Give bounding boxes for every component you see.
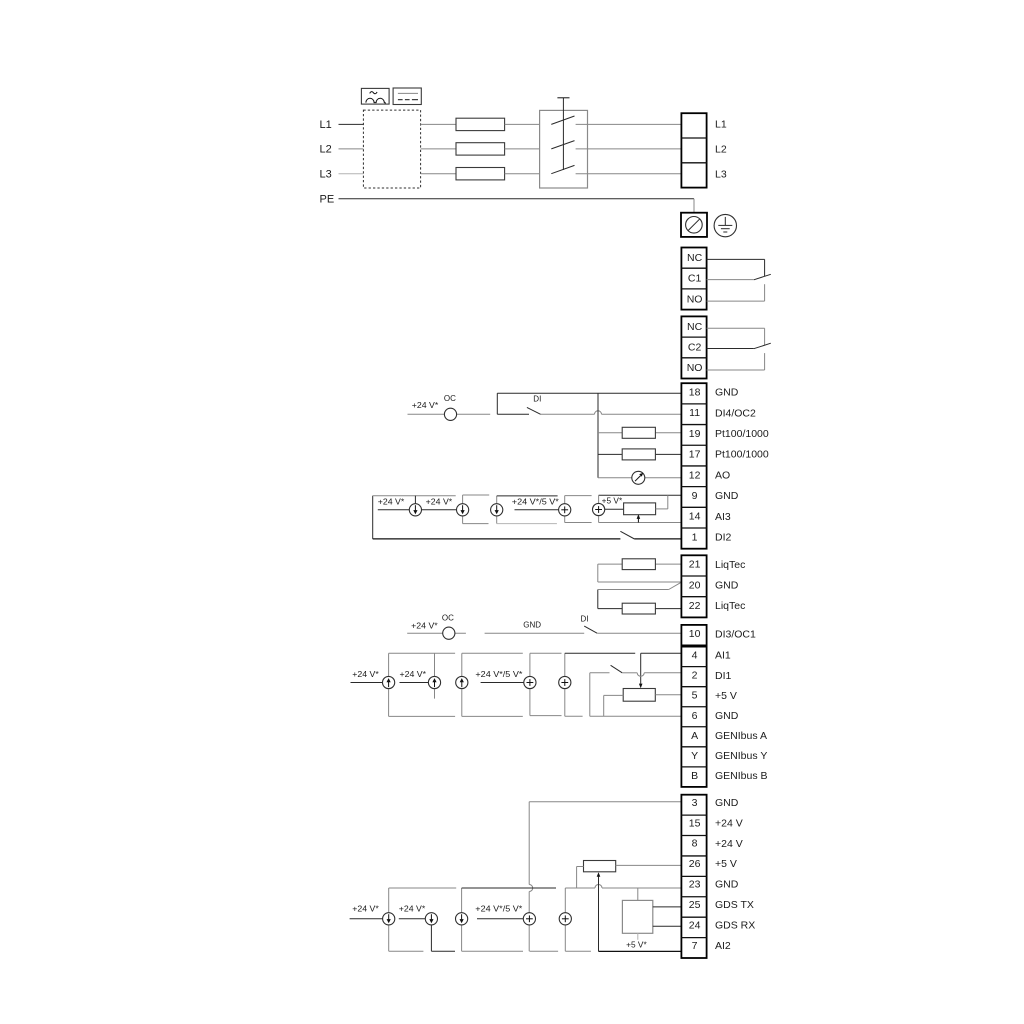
svg-text:7: 7 [692, 940, 698, 952]
svg-text:L3: L3 [715, 168, 727, 180]
svg-text:A: A [691, 730, 698, 742]
svg-text:6: 6 [692, 710, 698, 722]
svg-text:+24 V*: +24 V* [412, 401, 439, 410]
svg-text:GND: GND [715, 490, 739, 502]
svg-text:GND: GND [715, 387, 739, 399]
svg-text:GENIbus Y: GENIbus Y [715, 750, 767, 762]
svg-text:LiqTec: LiqTec [715, 559, 745, 571]
svg-text:8: 8 [692, 838, 698, 850]
svg-text:DI4/OC2: DI4/OC2 [715, 407, 756, 419]
svg-text:22: 22 [689, 600, 701, 612]
svg-text:L3: L3 [320, 168, 332, 180]
svg-text:AO: AO [715, 469, 730, 481]
svg-text:+24 V*/5 V*: +24 V*/5 V* [475, 904, 522, 913]
svg-text:L2: L2 [715, 144, 727, 156]
svg-text:DI: DI [581, 614, 589, 623]
svg-text:L1: L1 [715, 119, 727, 131]
svg-text:L2: L2 [320, 144, 332, 156]
svg-text:3: 3 [692, 797, 698, 809]
svg-text:+24 V*: +24 V* [352, 904, 379, 913]
svg-text:GENIbus A: GENIbus A [715, 730, 767, 742]
svg-text:+24 V*/5 V*: +24 V*/5 V* [512, 497, 559, 506]
svg-text:+24 V*: +24 V* [378, 497, 405, 506]
svg-text:AI3: AI3 [715, 511, 731, 523]
svg-text:LiqTec: LiqTec [715, 600, 745, 612]
svg-text:+5 V: +5 V [715, 858, 737, 870]
svg-text:11: 11 [689, 407, 700, 419]
svg-text:+24 V*: +24 V* [426, 497, 453, 506]
svg-text:NC: NC [687, 321, 703, 333]
svg-text:19: 19 [689, 428, 701, 440]
svg-text:GDS RX: GDS RX [715, 919, 755, 931]
svg-text:DI3/OC1: DI3/OC1 [715, 628, 756, 640]
svg-text:15: 15 [689, 817, 701, 829]
svg-text:+24 V: +24 V [715, 817, 743, 829]
svg-text:+5 V: +5 V [715, 690, 737, 702]
svg-text:+5 V*: +5 V* [626, 940, 647, 949]
svg-text:Pt100/1000: Pt100/1000 [715, 428, 769, 440]
svg-text:20: 20 [689, 579, 701, 591]
svg-text:L1: L1 [320, 119, 332, 131]
svg-text:GND: GND [715, 879, 739, 891]
svg-text:17: 17 [689, 449, 701, 461]
svg-text:AI1: AI1 [715, 650, 731, 662]
svg-text:GND: GND [715, 579, 739, 591]
svg-text:C1: C1 [688, 273, 702, 285]
svg-text:Y: Y [691, 750, 698, 762]
svg-text:5: 5 [692, 690, 698, 702]
svg-text:26: 26 [689, 858, 701, 870]
svg-text:9: 9 [692, 490, 698, 502]
svg-text:23: 23 [689, 879, 701, 891]
svg-text:4: 4 [692, 650, 698, 662]
svg-text:OC: OC [444, 394, 456, 403]
svg-text:Pt100/1000: Pt100/1000 [715, 449, 769, 461]
svg-text:OC: OC [442, 613, 454, 622]
svg-text:GND: GND [715, 797, 739, 809]
svg-text:DI2: DI2 [715, 531, 732, 543]
svg-text:GDS TX: GDS TX [715, 899, 754, 911]
svg-text:18: 18 [689, 387, 701, 399]
svg-text:24: 24 [689, 919, 701, 931]
svg-text:GND: GND [715, 710, 739, 722]
svg-text:C2: C2 [688, 341, 702, 353]
svg-text:DI: DI [533, 394, 541, 403]
svg-text:AI2: AI2 [715, 940, 731, 952]
svg-text:GENIbus B: GENIbus B [715, 770, 768, 782]
svg-text:+5 V*: +5 V* [602, 497, 623, 506]
svg-text:2: 2 [692, 670, 698, 682]
svg-text:+24 V*/5 V*: +24 V*/5 V* [475, 670, 522, 679]
svg-text:NO: NO [687, 293, 703, 305]
svg-text:B: B [691, 770, 698, 782]
svg-text:25: 25 [689, 899, 701, 911]
svg-text:DI1: DI1 [715, 670, 732, 682]
svg-text:+24 V*: +24 V* [352, 670, 379, 679]
svg-text:21: 21 [689, 559, 701, 571]
svg-text:GND: GND [523, 621, 541, 630]
svg-text:NC: NC [687, 252, 703, 264]
svg-text:PE: PE [320, 193, 335, 205]
svg-text:1: 1 [692, 531, 698, 543]
svg-text:+24 V*: +24 V* [399, 904, 426, 913]
svg-text:NO: NO [687, 362, 703, 374]
svg-text:+24 V*: +24 V* [400, 670, 427, 679]
svg-text:10: 10 [689, 628, 701, 640]
svg-text:+24 V: +24 V [715, 838, 743, 850]
svg-text:12: 12 [689, 469, 701, 481]
svg-text:14: 14 [689, 511, 701, 523]
svg-text:+24 V*: +24 V* [411, 622, 438, 631]
